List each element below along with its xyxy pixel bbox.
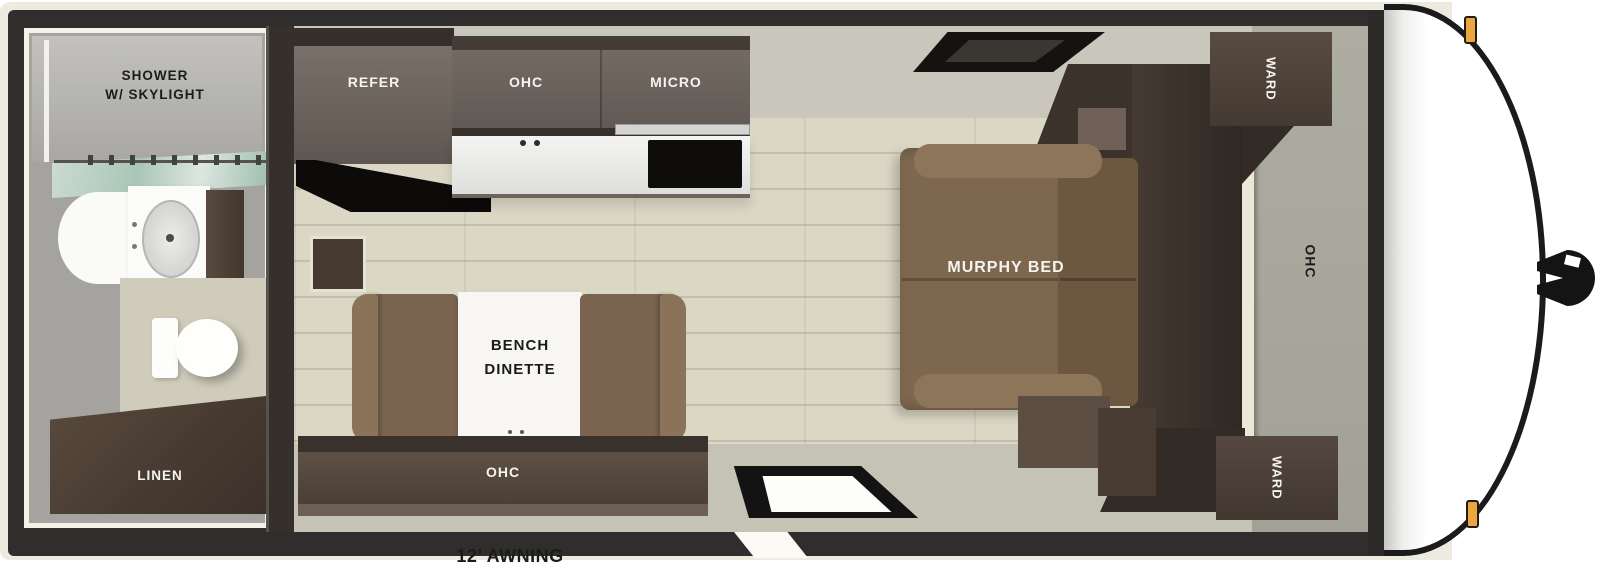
shower-wall-highlight — [44, 40, 49, 162]
bench-dinette-label: BENCH DINETTE — [448, 334, 592, 382]
awning-label: 12’ AWNING — [370, 546, 650, 568]
marker-light-top — [1464, 16, 1477, 44]
dinette-ohc-top — [298, 436, 708, 452]
upper-cabinet-top — [452, 36, 750, 50]
refer-cabinet-top — [294, 28, 454, 46]
ward-cabinet-bottom: WARD — [1216, 436, 1338, 520]
bed-foot-block — [1018, 396, 1110, 468]
front-interior-wall — [1368, 10, 1384, 556]
toilet-tank — [152, 318, 178, 378]
ohc-label: OHC — [452, 74, 600, 91]
cooktop — [648, 140, 742, 188]
toilet-bowl — [176, 319, 238, 377]
refer-cabinet — [294, 46, 454, 164]
range-vent-strip — [615, 124, 750, 135]
bed-foot-block-dark — [1098, 408, 1156, 496]
murphy-bed-label: MURPHY BED — [900, 258, 1112, 277]
vanity-counter — [58, 192, 136, 284]
dinette-ohc-bottom — [298, 504, 708, 516]
faucet-handle-dot — [132, 222, 137, 227]
shower-label-line1: SHOWER — [122, 68, 189, 83]
floorplan: SHOWER W/ SKYLIGHT LINEN REFER OHC MICRO… — [0, 0, 1600, 572]
table-leg-dot — [508, 430, 512, 434]
front-cap — [1384, 4, 1546, 556]
dinette-wall-cabinet — [310, 236, 366, 292]
marker-light-bottom — [1466, 500, 1479, 528]
ward-top-label: WARD — [1263, 57, 1279, 101]
linen-label: LINEN — [90, 468, 230, 484]
ward-bottom-label: WARD — [1269, 456, 1285, 500]
bench-dinette-label-line1: BENCH — [491, 337, 549, 354]
refer-label: REFER — [304, 74, 444, 91]
bed-ohc-label: OHC — [1302, 244, 1319, 278]
faucet-dot — [166, 234, 174, 242]
dinette-bench-right-back — [660, 294, 686, 442]
bathroom-door-panel — [206, 190, 244, 288]
shower-label: SHOWER W/ SKYLIGHT — [65, 66, 245, 104]
bathroom-divider-wall — [266, 26, 294, 532]
hitch-coupler-icon — [1535, 242, 1599, 318]
bench-dinette-label-line2: DINETTE — [484, 361, 555, 378]
murphy-bed-back — [1058, 158, 1138, 406]
murphy-bed-armrest-top — [914, 144, 1102, 178]
ward-cabinet-top: WARD — [1210, 32, 1332, 126]
table-leg-dot — [520, 430, 524, 434]
shower-label-line2: W/ SKYLIGHT — [105, 87, 205, 102]
dinette-bench-left-back — [352, 294, 378, 442]
murphy-bed-back-seam — [1060, 278, 1136, 281]
micro-label: MICRO — [602, 74, 750, 91]
faucet-handle-dot — [132, 244, 137, 249]
curtain-hooks — [88, 155, 266, 165]
sink-faucet-dot — [520, 140, 526, 146]
murphy-bed-seat-seam — [902, 278, 1074, 281]
sink-faucet-dot — [534, 140, 540, 146]
bed-ohc-panel: OHC — [1252, 226, 1368, 296]
dinette-ohc-label: OHC — [408, 464, 598, 481]
